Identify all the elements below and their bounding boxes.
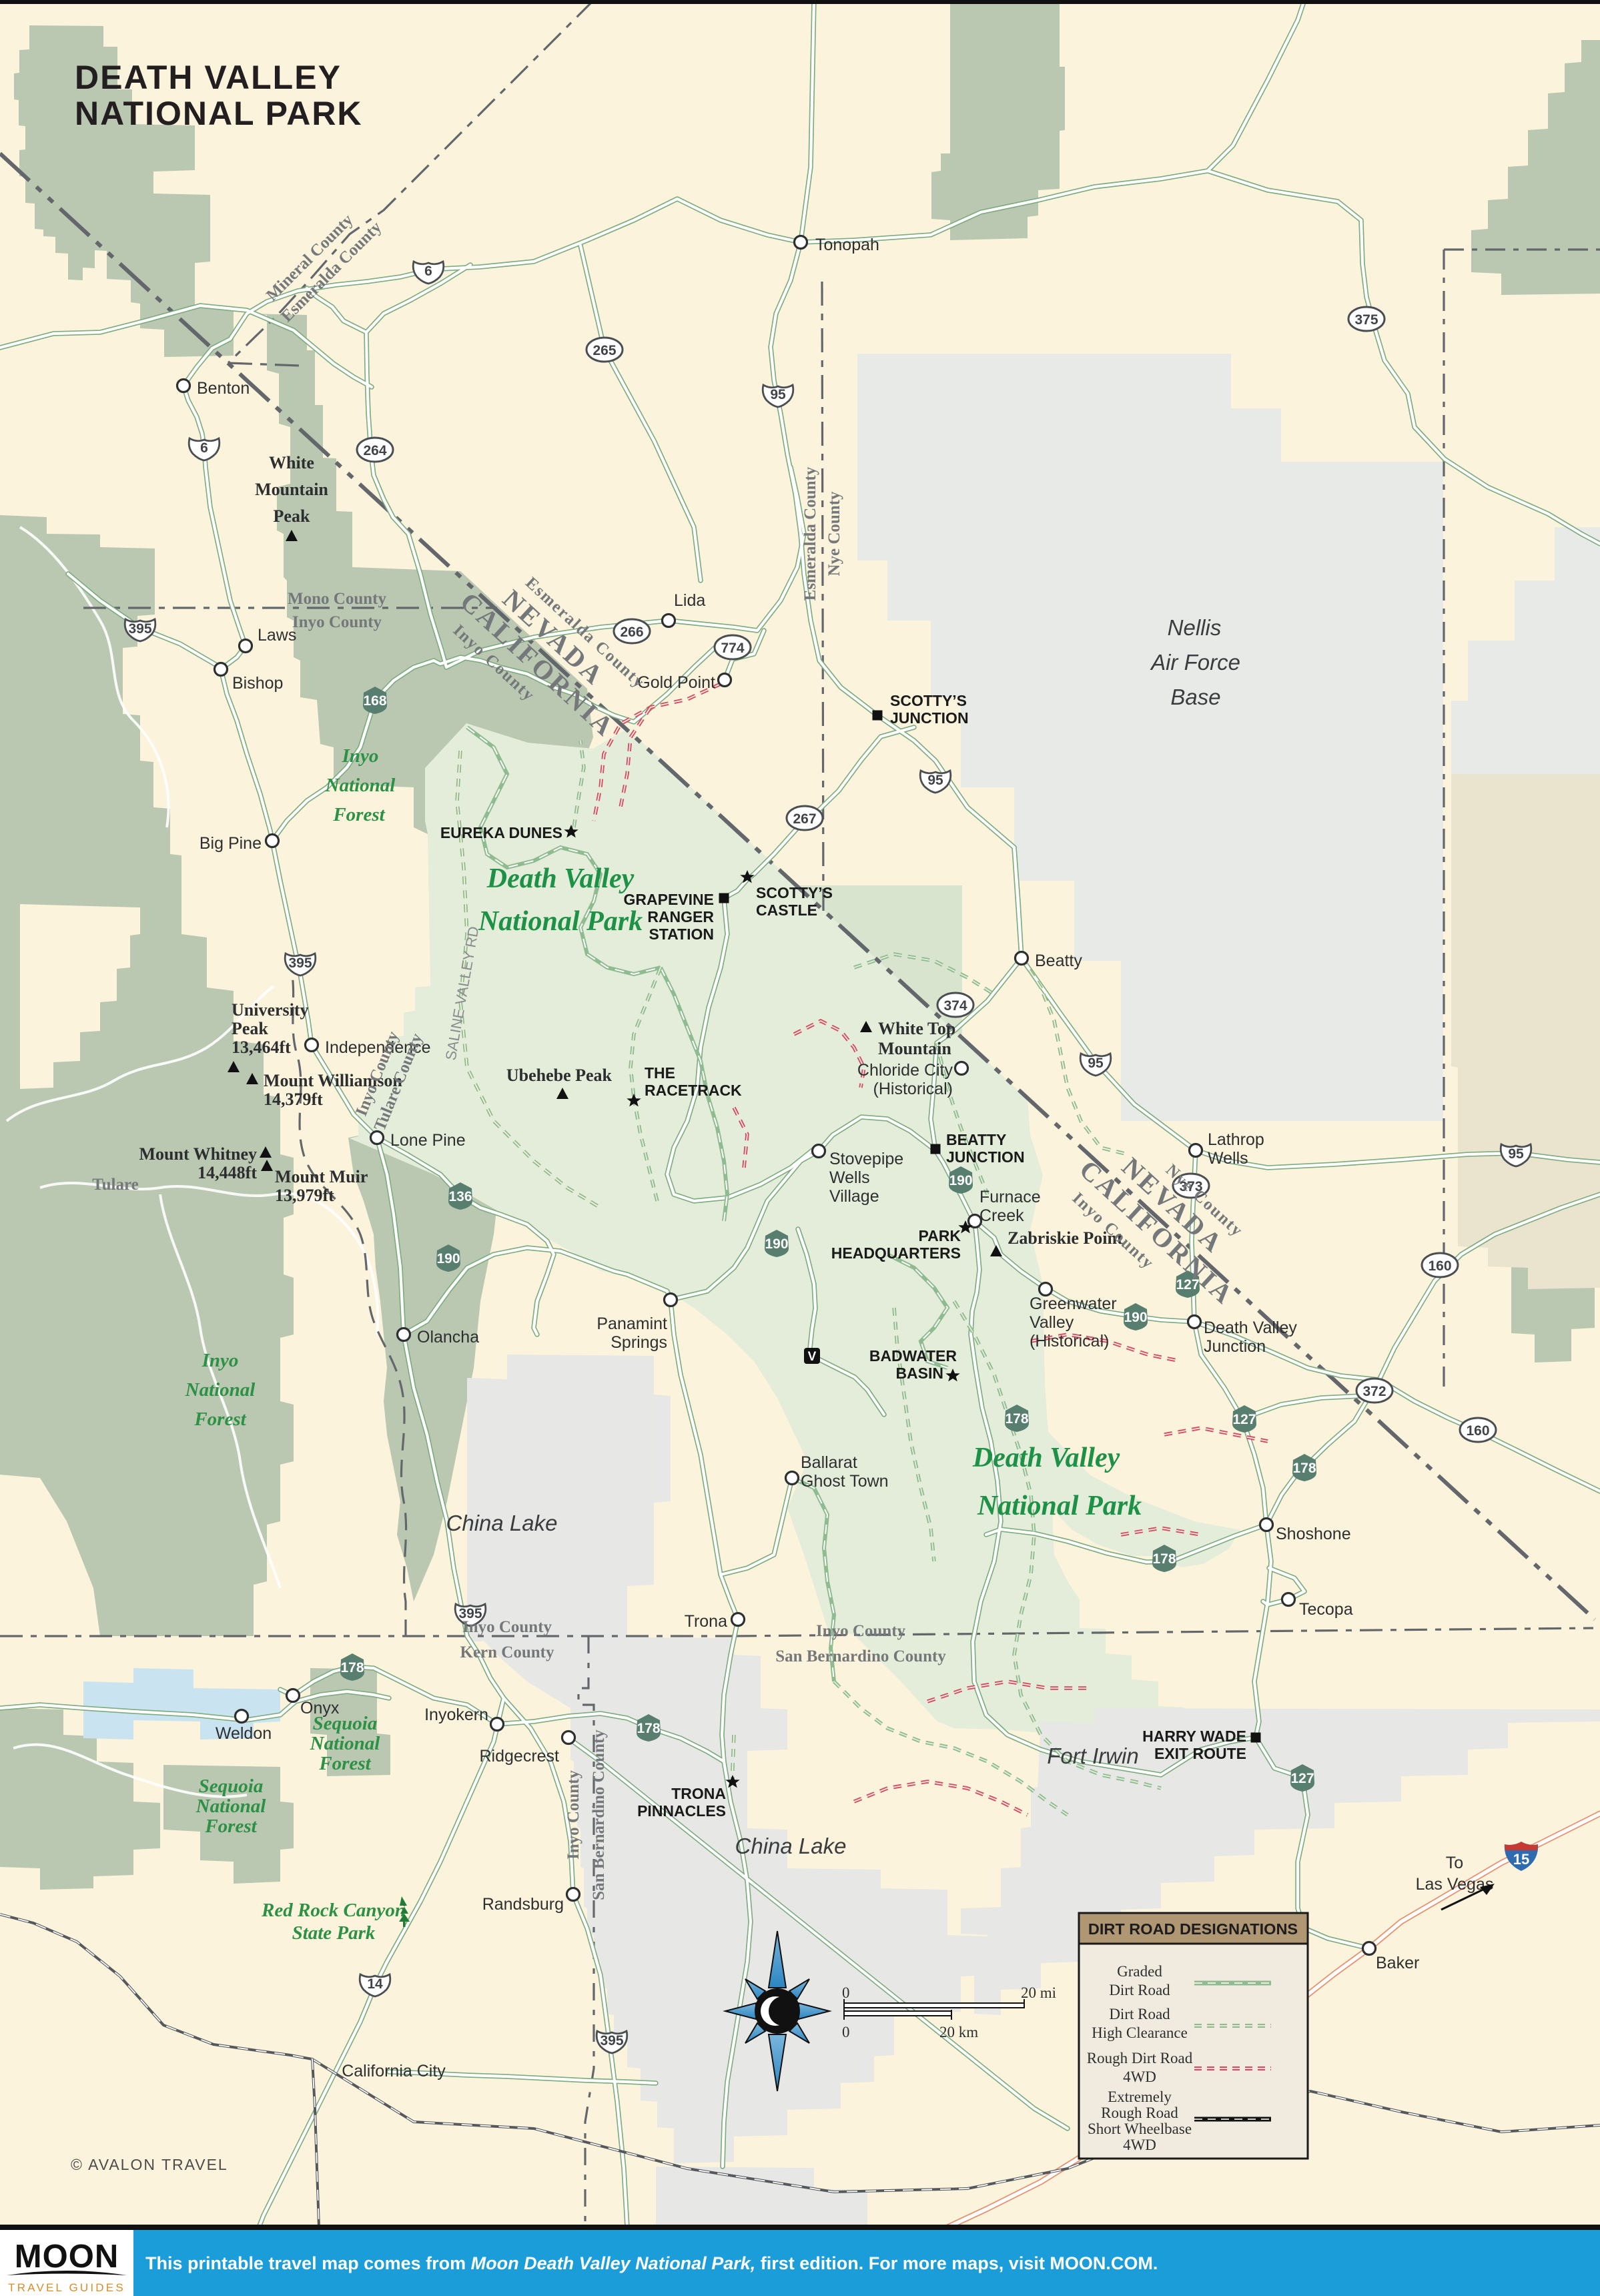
svg-text:Ridgecrest: Ridgecrest	[480, 1747, 560, 1766]
svg-text:Peak: Peak	[232, 1019, 268, 1038]
svg-text:Inyo: Inyo	[342, 745, 379, 767]
svg-text:Kern County: Kern County	[460, 1643, 554, 1661]
svg-text:BASIN: BASIN	[895, 1365, 943, 1382]
svg-text:This printable travel map come: This printable travel map comes from Moo…	[145, 2253, 1158, 2273]
svg-text:Mono County: Mono County	[288, 590, 386, 608]
svg-text:JUNCTION: JUNCTION	[946, 1148, 1025, 1166]
svg-text:HARRY WADE: HARRY WADE	[1142, 1728, 1246, 1745]
svg-text:Bishop: Bishop	[232, 674, 283, 693]
svg-text:6: 6	[424, 264, 432, 279]
svg-text:State Park: State Park	[292, 1922, 376, 1944]
svg-text:4WD: 4WD	[1123, 2137, 1156, 2153]
svg-text:Fort Irwin: Fort Irwin	[1047, 1744, 1139, 1768]
svg-text:Creek: Creek	[979, 1206, 1024, 1225]
svg-text:To: To	[1446, 1854, 1463, 1872]
svg-text:374: 374	[943, 998, 967, 1014]
svg-text:Ubehebe Peak: Ubehebe Peak	[506, 1066, 613, 1085]
svg-text:Forest: Forest	[318, 1753, 371, 1774]
svg-text:University: University	[232, 1000, 309, 1020]
svg-text:13,464ft: 13,464ft	[232, 1038, 291, 1057]
svg-text:15: 15	[1513, 1851, 1529, 1868]
svg-text:Ballarat: Ballarat	[801, 1453, 857, 1472]
svg-text:Stovepipe: Stovepipe	[829, 1150, 903, 1168]
svg-text:774: 774	[721, 641, 744, 656]
svg-text:190: 190	[1124, 1310, 1147, 1325]
svg-text:20 km: 20 km	[939, 2024, 978, 2040]
svg-text:SCOTTY’S: SCOTTY’S	[890, 692, 967, 709]
svg-text:Rough Dirt Road: Rough Dirt Road	[1087, 2050, 1193, 2066]
svg-text:Sequoia: Sequoia	[199, 1776, 264, 1797]
svg-text:395: 395	[128, 621, 151, 637]
svg-text:Sequoia: Sequoia	[313, 1713, 378, 1734]
svg-text:127: 127	[1290, 1771, 1314, 1786]
svg-text:Forest: Forest	[332, 804, 385, 825]
svg-text:372: 372	[1362, 1384, 1386, 1399]
svg-text:V: V	[808, 1350, 817, 1364]
svg-text:Gold Point: Gold Point	[637, 673, 715, 692]
svg-text:National Park: National Park	[478, 906, 643, 937]
svg-text:Valley: Valley	[1030, 1313, 1074, 1332]
svg-text:(Historical): (Historical)	[1030, 1332, 1109, 1351]
svg-text:178: 178	[340, 1660, 364, 1675]
svg-text:EUREKA DUNES: EUREKA DUNES	[440, 824, 562, 841]
svg-text:Inyo: Inyo	[202, 1350, 239, 1371]
svg-text:178: 178	[1152, 1551, 1176, 1567]
svg-text:CASTLE: CASTLE	[756, 901, 817, 919]
svg-text:160: 160	[1466, 1423, 1489, 1439]
svg-text:HEADQUARTERS: HEADQUARTERS	[831, 1244, 961, 1262]
svg-text:Laws: Laws	[258, 626, 296, 645]
svg-text:Beatty: Beatty	[1035, 951, 1082, 970]
svg-text:National Park: National Park	[977, 1491, 1142, 1521]
svg-text:14: 14	[367, 1976, 383, 1992]
svg-text:Graded: Graded	[1117, 1963, 1162, 1980]
svg-text:China Lake: China Lake	[735, 1834, 847, 1858]
svg-text:Lone Pine: Lone Pine	[390, 1131, 466, 1150]
svg-text:Inyo County: Inyo County	[292, 613, 382, 631]
svg-text:Inyo County: Inyo County	[462, 1618, 552, 1636]
svg-text:0: 0	[842, 1984, 850, 2001]
svg-text:National: National	[310, 1733, 381, 1754]
svg-text:375: 375	[1354, 312, 1378, 328]
svg-text:Baker: Baker	[1376, 1954, 1419, 1972]
svg-text:JUNCTION: JUNCTION	[890, 709, 969, 727]
svg-text:Inyokern: Inyokern	[424, 1705, 488, 1724]
svg-text:Tulare: Tulare	[92, 1176, 138, 1194]
svg-text:NATIONAL PARK: NATIONAL PARK	[75, 95, 363, 132]
svg-text:Extremely: Extremely	[1108, 2088, 1172, 2105]
svg-text:Mountain: Mountain	[255, 480, 328, 499]
svg-text:Wells: Wells	[1208, 1149, 1248, 1168]
svg-text:Greenwater: Greenwater	[1030, 1294, 1117, 1313]
svg-text:National: National	[195, 1796, 267, 1817]
svg-text:RACETRACK: RACETRACK	[645, 1082, 742, 1099]
svg-text:Big Pine: Big Pine	[199, 834, 262, 853]
svg-text:Junction: Junction	[1204, 1337, 1266, 1356]
svg-text:EXIT ROUTE: EXIT ROUTE	[1154, 1745, 1246, 1762]
svg-text:Randsburg: Randsburg	[482, 1895, 564, 1914]
svg-text:DEATH VALLEY: DEATH VALLEY	[75, 59, 342, 96]
svg-text:White: White	[269, 453, 314, 472]
svg-text:Peak: Peak	[274, 506, 310, 526]
svg-text:0: 0	[842, 2024, 850, 2040]
svg-text:190: 190	[436, 1251, 460, 1266]
svg-text:178: 178	[1292, 1461, 1316, 1476]
svg-text:Olancha: Olancha	[417, 1328, 479, 1347]
svg-text:160: 160	[1428, 1258, 1451, 1274]
svg-text:PARK: PARK	[919, 1227, 961, 1244]
svg-text:Short Wheelbase: Short Wheelbase	[1088, 2121, 1192, 2137]
svg-text:Springs: Springs	[611, 1333, 667, 1352]
svg-text:Dirt Road: Dirt Road	[1109, 2006, 1170, 2022]
svg-text:20 mi: 20 mi	[1021, 1984, 1056, 2001]
svg-text:Lathrop: Lathrop	[1208, 1130, 1264, 1149]
svg-text:© AVALON TRAVEL: © AVALON TRAVEL	[71, 2156, 228, 2173]
svg-text:Death Valley: Death Valley	[486, 863, 635, 894]
svg-text:Wells: Wells	[829, 1168, 870, 1187]
svg-text:95: 95	[1508, 1146, 1524, 1162]
svg-text:Furnace: Furnace	[979, 1188, 1041, 1206]
svg-text:THE: THE	[645, 1064, 675, 1082]
svg-text:RANGER: RANGER	[647, 908, 714, 925]
svg-text:High Clearance: High Clearance	[1092, 2024, 1188, 2041]
svg-text:Benton: Benton	[197, 379, 250, 398]
svg-text:127: 127	[1232, 1412, 1256, 1427]
svg-text:National: National	[325, 775, 396, 796]
svg-text:168: 168	[363, 693, 386, 709]
svg-text:Forest: Forest	[193, 1409, 246, 1430]
svg-text:PINNACLES: PINNACLES	[637, 1802, 726, 1820]
svg-text:Tecopa: Tecopa	[1299, 1600, 1353, 1619]
svg-text:136: 136	[448, 1189, 472, 1204]
svg-text:(Historical): (Historical)	[873, 1080, 953, 1098]
svg-text:Village: Village	[829, 1187, 879, 1206]
svg-text:China Lake: China Lake	[446, 1511, 558, 1535]
svg-text:395: 395	[288, 955, 312, 971]
svg-text:190: 190	[949, 1173, 972, 1188]
svg-text:Weldon: Weldon	[216, 1724, 272, 1743]
svg-text:Ghost Town: Ghost Town	[801, 1472, 889, 1491]
svg-text:Base: Base	[1170, 685, 1220, 709]
svg-text:National: National	[185, 1379, 256, 1401]
svg-text:STATION: STATION	[649, 925, 714, 943]
svg-text:Trona: Trona	[685, 1612, 727, 1631]
svg-text:Red Rock Canyon: Red Rock Canyon	[261, 1900, 406, 1921]
svg-text:Rough Road: Rough Road	[1101, 2104, 1178, 2121]
svg-text:Death Valley: Death Valley	[1204, 1318, 1297, 1337]
svg-text:264: 264	[363, 443, 386, 458]
svg-text:BEATTY: BEATTY	[946, 1131, 1006, 1148]
svg-text:190: 190	[765, 1236, 788, 1252]
svg-text:6: 6	[200, 440, 208, 456]
svg-text:Dirt Road: Dirt Road	[1109, 1982, 1170, 1998]
svg-text:San Bernardino County: San Bernardino County	[590, 1730, 608, 1900]
svg-text:Mountain: Mountain	[878, 1039, 951, 1058]
svg-text:Nellis: Nellis	[1168, 615, 1222, 640]
svg-text:Mount Muir: Mount Muir	[275, 1167, 368, 1186]
svg-text:Chloride City: Chloride City	[857, 1061, 953, 1080]
svg-text:14,448ft: 14,448ft	[197, 1163, 257, 1182]
svg-text:Air Force: Air Force	[1150, 650, 1240, 675]
svg-text:MOON: MOON	[15, 2239, 119, 2275]
svg-text:TRAVEL GUIDES: TRAVEL GUIDES	[8, 2281, 125, 2294]
svg-text:Lida: Lida	[674, 591, 705, 610]
svg-text:TRONA: TRONA	[671, 1785, 726, 1802]
svg-text:Panamint: Panamint	[596, 1314, 667, 1333]
svg-text:Death Valley: Death Valley	[972, 1443, 1120, 1473]
svg-text:Inyo County: Inyo County	[816, 1622, 906, 1640]
svg-text:DIRT ROAD DESIGNATIONS: DIRT ROAD DESIGNATIONS	[1088, 1920, 1298, 1938]
svg-text:13,979ft: 13,979ft	[275, 1186, 334, 1205]
svg-text:Forest: Forest	[204, 1816, 257, 1837]
svg-text:Nye County: Nye County	[825, 491, 843, 577]
svg-text:Inyo County: Inyo County	[564, 1770, 582, 1860]
svg-text:265: 265	[592, 343, 616, 358]
svg-text:4WD: 4WD	[1123, 2068, 1156, 2085]
svg-text:White Top: White Top	[878, 1019, 955, 1038]
svg-text:14,379ft: 14,379ft	[264, 1090, 323, 1109]
svg-text:395: 395	[600, 2033, 623, 2048]
svg-text:SCOTTY’S: SCOTTY’S	[756, 884, 833, 901]
svg-text:95: 95	[770, 387, 786, 402]
svg-text:Tonopah: Tonopah	[815, 236, 879, 254]
svg-text:267: 267	[793, 811, 816, 827]
svg-text:Esmeralda County: Esmeralda County	[801, 466, 819, 601]
svg-text:California City: California City	[342, 2062, 446, 2080]
svg-text:Shoshone: Shoshone	[1276, 1525, 1351, 1543]
svg-text:266: 266	[620, 625, 643, 640]
svg-text:BADWATER: BADWATER	[869, 1347, 957, 1365]
svg-text:95: 95	[1088, 1056, 1104, 1071]
svg-text:95: 95	[927, 773, 943, 788]
svg-text:178: 178	[637, 1721, 660, 1736]
svg-text:San Bernardino County: San Bernardino County	[775, 1647, 946, 1665]
svg-text:178: 178	[1005, 1411, 1028, 1427]
svg-text:Mount Whitney: Mount Whitney	[139, 1144, 258, 1164]
